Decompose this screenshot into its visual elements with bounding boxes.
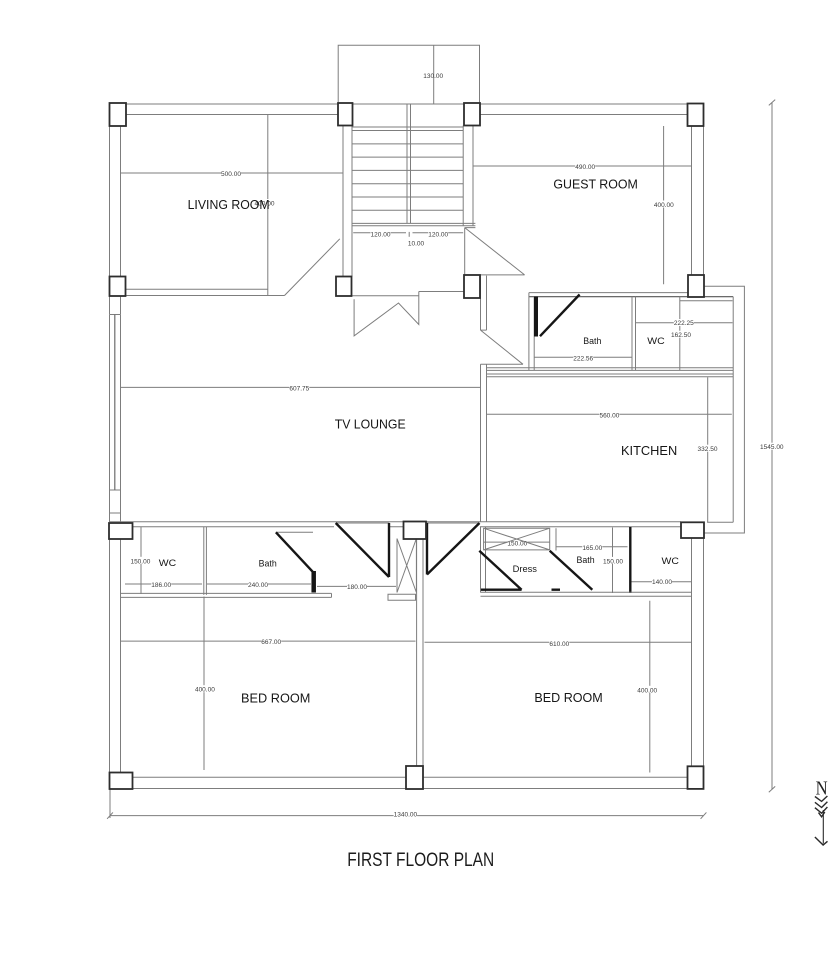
svg-text:162.50: 162.50 [671, 332, 691, 339]
svg-text:667.00: 667.00 [261, 639, 281, 646]
svg-text:165.00: 165.00 [582, 545, 602, 552]
svg-text:BED ROOM: BED ROOM [241, 692, 310, 706]
svg-text:500.00: 500.00 [221, 171, 241, 178]
svg-text:240.00: 240.00 [248, 582, 268, 589]
svg-text:1340.00: 1340.00 [394, 811, 418, 818]
svg-text:222.56: 222.56 [573, 355, 593, 362]
svg-text:180.00: 180.00 [347, 584, 367, 591]
svg-text:KITCHEN: KITCHEN [621, 444, 677, 458]
svg-text:120.00: 120.00 [428, 231, 448, 238]
svg-text:WC: WC [662, 556, 680, 566]
svg-text:222.25: 222.25 [674, 320, 694, 327]
svg-text:TV LOUNGE: TV LOUNGE [335, 418, 406, 432]
svg-text:560.00: 560.00 [599, 413, 619, 420]
svg-text:WC: WC [159, 558, 177, 568]
svg-text:Dress: Dress [513, 564, 538, 574]
svg-text:Bath: Bath [583, 336, 601, 346]
svg-text:490.00: 490.00 [575, 164, 595, 171]
svg-text:10.00: 10.00 [408, 240, 425, 247]
svg-text:Bath: Bath [259, 558, 277, 568]
svg-text:120.00: 120.00 [371, 231, 391, 238]
svg-text:140.00: 140.00 [652, 579, 672, 586]
svg-text:N: N [816, 778, 828, 800]
svg-text:LIVING ROOM: LIVING ROOM [188, 198, 270, 212]
svg-text:607.75: 607.75 [289, 385, 309, 392]
svg-text:130.00: 130.00 [423, 73, 443, 80]
svg-text:400.00: 400.00 [195, 687, 215, 694]
svg-text:Bath: Bath [577, 555, 595, 565]
svg-text:BED ROOM: BED ROOM [534, 691, 602, 705]
svg-text:610.00: 610.00 [549, 641, 569, 648]
svg-text:150.00: 150.00 [603, 558, 623, 565]
svg-text:WC: WC [647, 336, 665, 346]
svg-text:186.00: 186.00 [151, 582, 171, 589]
svg-text:GUEST ROOM: GUEST ROOM [553, 178, 638, 192]
svg-text:1545.00: 1545.00 [760, 444, 784, 451]
svg-text:332.50: 332.50 [698, 446, 718, 453]
svg-text:FIRST FLOOR PLAN: FIRST FLOOR PLAN [347, 850, 494, 871]
svg-text:400.00: 400.00 [637, 687, 657, 694]
svg-text:150.00: 150.00 [130, 558, 150, 565]
svg-text:400.00: 400.00 [654, 202, 674, 209]
